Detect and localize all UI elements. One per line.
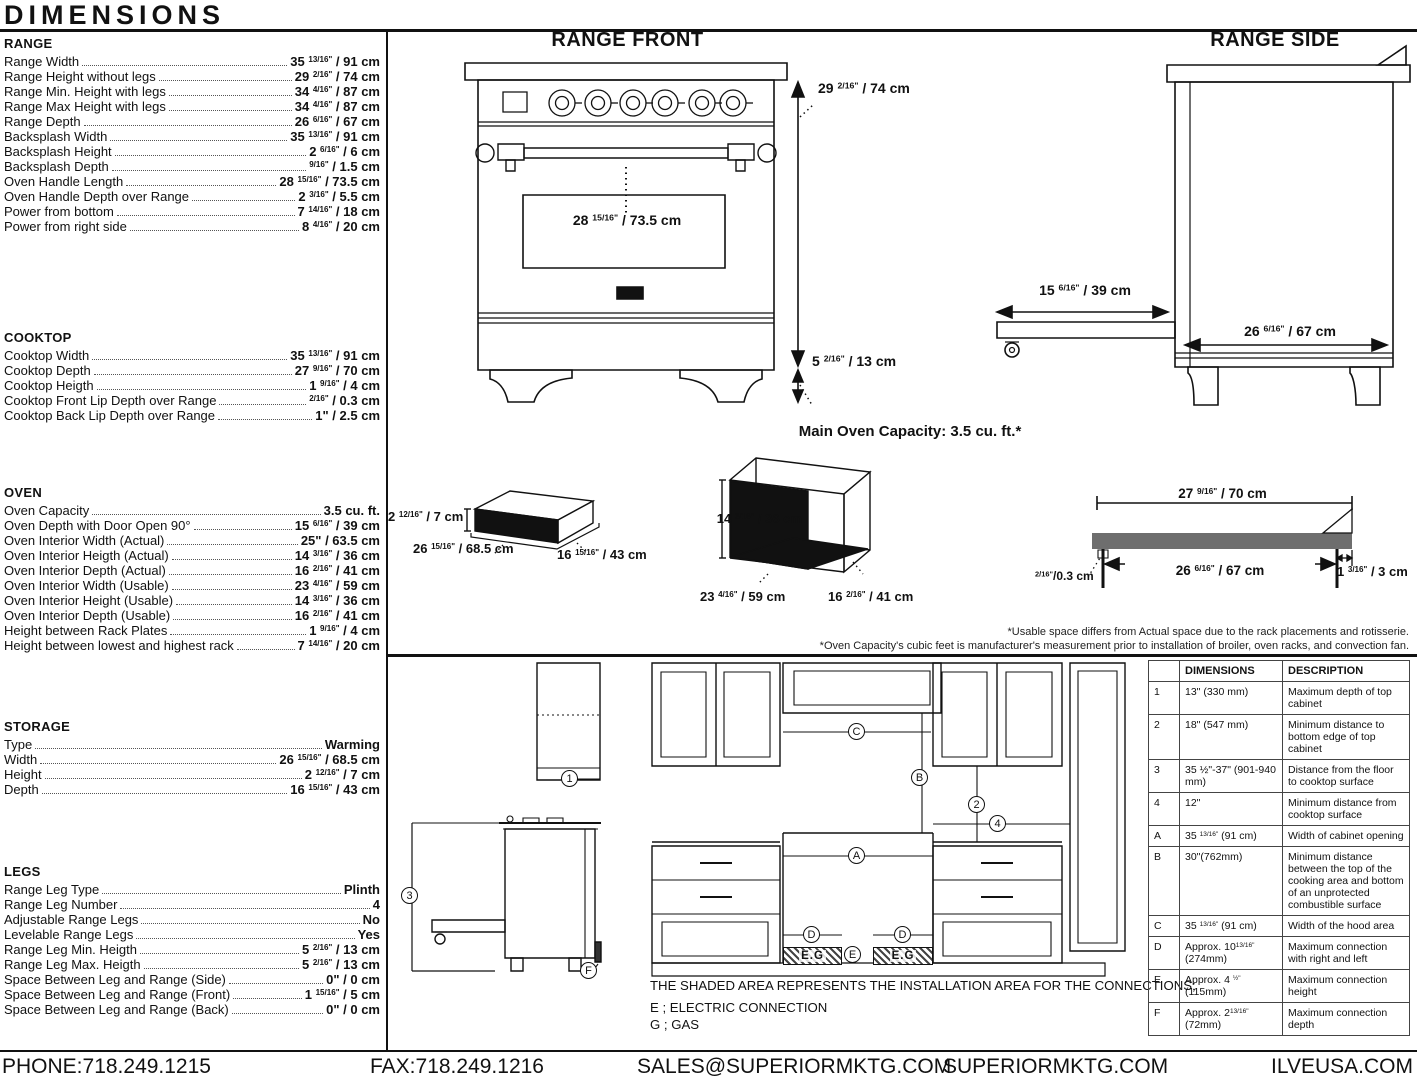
spec-label: Range Leg Max. Heigth <box>4 957 141 972</box>
storage-width-label: 26 15/16" / 68.5 cm <box>413 541 514 556</box>
spec-label: Cooktop Back Lip Depth over Range <box>4 408 215 423</box>
table-row: C35 13/16" (91 cm)Width of the hood area <box>1149 916 1410 937</box>
spec-row: Oven Depth with Door Open 90°15 6/16" / … <box>4 518 380 533</box>
spec-label: Backsplash Height <box>4 144 112 159</box>
footer-rule <box>0 1050 1417 1052</box>
dotted-leader <box>167 544 297 545</box>
dotted-leader <box>169 574 292 575</box>
spec-row: Range Height without legs29 2/16" / 74 c… <box>4 69 380 84</box>
spec-row: Height2 12/16" / 7 cm <box>4 767 380 782</box>
dotted-leader <box>173 619 292 620</box>
front-height-label: 29 2/16" / 74 cm <box>818 80 910 96</box>
front-handle-label: 28 15/16" / 73.5 cm <box>532 212 722 228</box>
callout-1: 1 <box>561 770 578 787</box>
dotted-leader <box>102 893 341 894</box>
drawer-dimension-arrow <box>997 306 1168 318</box>
section-heading: COOKTOP <box>4 330 380 345</box>
cooktop-inner-label: 26 6/16" / 67 cm <box>1125 563 1315 578</box>
spec-value: 4 <box>373 897 380 912</box>
spec-label: Range Leg Type <box>4 882 99 897</box>
callout-c: C <box>848 723 865 740</box>
upper-right-cabinets <box>933 663 1062 766</box>
open-drawer <box>432 920 505 932</box>
connection-zone-left: E.G <box>783 947 842 965</box>
leg-dimension-arrow <box>793 370 812 405</box>
oven-height-label: 14 3/16" / 36 cm <box>650 511 802 526</box>
row-id: A <box>1149 826 1180 847</box>
tall-cabinet <box>1070 663 1125 951</box>
footnote-usable: *Usable space differs from Actual space … <box>1007 626 1409 638</box>
spec-row: Range Max Height with legs34 4/16" / 87 … <box>4 99 380 114</box>
spec-row: Backsplash Height2 6/16" / 6 cm <box>4 144 380 159</box>
row-id: 4 <box>1149 793 1180 826</box>
spec-value: 7 14/16" / 18 cm <box>298 204 381 219</box>
row-id: C <box>1149 916 1180 937</box>
spec-value: 5 2/16" / 13 cm <box>302 942 380 957</box>
cooktop-lip-label: 2/16"/0.3 cm <box>1035 569 1094 583</box>
spec-row: Range Min. Height with legs34 4/16" / 87… <box>4 84 380 99</box>
callout-e: E <box>844 946 861 963</box>
row-id: B <box>1149 847 1180 916</box>
callout-2: 2 <box>968 796 985 813</box>
dotted-leader <box>169 95 292 96</box>
spec-row: Range Leg Number4 <box>4 897 380 912</box>
cooktop-top-label: 27 9/16" / 70 cm <box>1095 486 1350 501</box>
spec-row: Space Between Leg and Range (Front)1 15/… <box>4 987 380 1002</box>
dotted-leader <box>82 65 287 66</box>
spec-value: 16 2/16" / 41 cm <box>295 608 380 623</box>
backsplash-wedge <box>1378 46 1406 65</box>
dotted-leader <box>172 559 292 560</box>
spec-label: Depth <box>4 782 39 797</box>
spec-row: Cooktop Depth27 9/16" / 70 cm <box>4 363 380 378</box>
spec-row: Depth16 15/16" / 43 cm <box>4 782 380 797</box>
install-side-diagram <box>395 658 655 1048</box>
spec-value: 16 2/16" / 41 cm <box>295 563 380 578</box>
spec-label: Oven Capacity <box>4 503 89 518</box>
spec-label: Adjustable Range Legs <box>4 912 138 927</box>
row-id: 2 <box>1149 715 1180 760</box>
table-row: 335 ½"-37" (901-940 mm)Distance from the… <box>1149 760 1410 793</box>
row-description: Width of the hood area <box>1283 916 1410 937</box>
spec-row: TypeWarming <box>4 737 380 752</box>
capacity-title: Main Oven Capacity: 3.5 cu. ft.* <box>755 423 1065 440</box>
spec-value: 27 9/16" / 70 cm <box>295 363 380 378</box>
spec-value: 7 14/16" / 20 cm <box>298 638 381 653</box>
dotted-leader <box>136 938 354 939</box>
spec-row: Backsplash Depth9/16" / 1.5 cm <box>4 159 380 174</box>
footer-fax: FAX:718.249.1216 <box>370 1055 544 1079</box>
footer-site2: ILVEUSA.COM <box>1271 1055 1413 1079</box>
display-panel <box>503 92 527 112</box>
row-description: Minimum distance to bottom edge of top c… <box>1283 715 1410 760</box>
spec-label: Range Width <box>4 54 79 69</box>
spec-row: Oven Capacity3.5 cu. ft. <box>4 503 380 518</box>
row-dimension: 13" (330 mm) <box>1180 682 1283 715</box>
row-dimension: Approx. 4 ½" (115mm) <box>1180 970 1283 1003</box>
spec-label: Backsplash Depth <box>4 159 109 174</box>
side-depth-label: 26 6/16" / 67 cm <box>1185 323 1395 339</box>
dotted-leader <box>126 185 276 186</box>
row-dimension: 35 13/16" (91 cm) <box>1180 916 1283 937</box>
dotted-leader <box>169 110 292 111</box>
range-side-body <box>505 829 595 958</box>
spec-row: Oven Interior Width (Usable)23 4/16" / 5… <box>4 578 380 593</box>
spec-value: 35 13/16" / 91 cm <box>290 54 380 69</box>
row-id: F <box>1149 1003 1180 1036</box>
spec-label: Height between lowest and highest rack <box>4 638 234 653</box>
dotted-leader <box>94 374 292 375</box>
table-row: FApprox. 213/16" (72mm)Maximum connectio… <box>1149 1003 1410 1036</box>
table-row: 218" (547 mm)Minimum distance to bottom … <box>1149 715 1410 760</box>
spec-label: Power from right side <box>4 219 127 234</box>
spec-label: Oven Handle Depth over Range <box>4 189 189 204</box>
spec-row: Range Depth26 6/16" / 67 cm <box>4 114 380 129</box>
dotted-leader <box>233 998 302 999</box>
burner-knobs-icon <box>549 90 753 116</box>
row-id: 3 <box>1149 760 1180 793</box>
dotted-leader <box>97 389 307 390</box>
spec-value: 0" / 0 cm <box>326 1002 380 1017</box>
spec-label: Range Leg Min. Heigth <box>4 942 137 957</box>
description-column-header: DESCRIPTION <box>1283 661 1410 682</box>
spec-label: Oven Interior Width (Actual) <box>4 533 164 548</box>
spec-value: 0" / 0 cm <box>326 972 380 987</box>
range-side-diagram <box>990 40 1417 410</box>
spec-label: Oven Interior Depth (Usable) <box>4 608 170 623</box>
dotted-leader <box>117 215 295 216</box>
row-dimension: 35 ½"-37" (901-940 mm) <box>1180 760 1283 793</box>
spec-value: No <box>363 912 380 927</box>
spec-value: 28 15/16" / 73.5 cm <box>279 174 380 189</box>
spec-value: 2 3/16" / 5.5 cm <box>298 189 380 204</box>
upper-left-cabinets <box>652 663 780 766</box>
range-front-diagram <box>440 55 815 405</box>
wall-cabinet <box>537 663 600 780</box>
dotted-leader <box>170 634 306 635</box>
spec-row: Width26 15/16" / 68.5 cm <box>4 752 380 767</box>
spec-row: Space Between Leg and Range (Back)0" / 0… <box>4 1002 380 1017</box>
spec-label: Range Depth <box>4 114 81 129</box>
table-row: EApprox. 4 ½" (115mm)Maximum connection … <box>1149 970 1410 1003</box>
dimensions-column-header: DIMENSIONS <box>1180 661 1283 682</box>
spec-row: Adjustable Range LegsNo <box>4 912 380 927</box>
table-row: 113" (330 mm)Maximum depth of top cabine… <box>1149 682 1410 715</box>
table-row: DApprox. 1013/16" (274mm)Maximum connect… <box>1149 937 1410 970</box>
backsplash <box>465 63 787 80</box>
row-description: Maximum depth of top cabinet <box>1283 682 1410 715</box>
row-id: E <box>1149 970 1180 1003</box>
spec-value: 34 4/16" / 87 cm <box>295 99 380 114</box>
row-description: Minimum distance between the top of the … <box>1283 847 1410 916</box>
id-column-header <box>1149 661 1180 682</box>
side-drawer-label: 15 6/16" / 39 cm <box>995 282 1175 298</box>
oven-handle <box>476 144 776 171</box>
table-row: 412"Minimum distance from cooktop surfac… <box>1149 793 1410 826</box>
legend-gas: G ; GAS <box>650 1017 699 1032</box>
dotted-leader <box>218 419 312 420</box>
row-description: Maximum connection depth <box>1283 1003 1410 1036</box>
spec-row: Range Width35 13/16" / 91 cm <box>4 54 380 69</box>
depth-dimension-arrow <box>1185 339 1387 351</box>
storage-depth-label: 16 15/16" / 43 cm <box>557 547 647 562</box>
row-description: Width of cabinet opening <box>1283 826 1410 847</box>
page-title: DIMENSIONS <box>4 0 225 31</box>
dotted-leader <box>42 793 288 794</box>
spec-value: 2 6/16" / 6 cm <box>309 144 380 159</box>
spec-label: Range Min. Height with legs <box>4 84 166 99</box>
callout-d: D <box>803 926 820 943</box>
spec-section-storage: STORAGETypeWarmingWidth26 15/16" / 68.5 … <box>4 719 380 797</box>
spec-row: Backsplash Width35 13/16" / 91 cm <box>4 129 380 144</box>
spec-value: Plinth <box>344 882 380 897</box>
side-top-cap <box>1167 65 1410 82</box>
spec-value: 35 13/16" / 91 cm <box>290 129 380 144</box>
spec-row: Oven Handle Length28 15/16" / 73.5 cm <box>4 174 380 189</box>
spec-row: Cooktop Width35 13/16" / 91 cm <box>4 348 380 363</box>
burner-icon <box>507 816 513 822</box>
spec-row: Cooktop Front Lip Depth over Range2/16" … <box>4 393 380 408</box>
connection-zone-label: E.G <box>799 950 826 962</box>
right-base-cabinet <box>933 842 1062 963</box>
storage-height-label: 2 12/16" / 7 cm <box>388 509 463 524</box>
vertical-divider <box>386 31 388 1052</box>
callout-b: B <box>911 769 928 786</box>
spec-label: Space Between Leg and Range (Front) <box>4 987 230 1002</box>
front-leg-label: 5 2/16" / 13 cm <box>812 353 896 369</box>
table-row: B30"(762mm)Minimum distance between the … <box>1149 847 1410 916</box>
row-id: D <box>1149 937 1180 970</box>
spec-value: 34 4/16" / 87 cm <box>295 84 380 99</box>
spec-value: 3.5 cu. ft. <box>324 503 380 518</box>
spec-label: Backsplash Width <box>4 129 107 144</box>
installation-note: THE SHADED AREA REPRESENTS THE INSTALLAT… <box>650 978 1196 993</box>
spec-label: Space Between Leg and Range (Back) <box>4 1002 229 1017</box>
row-dimension: Approx. 1013/16" (274mm) <box>1180 937 1283 970</box>
spec-label: Range Leg Number <box>4 897 117 912</box>
spec-label: Oven Interior Heigth (Actual) <box>4 548 169 563</box>
spec-row: Cooktop Back Lip Depth over Range1" / 2.… <box>4 408 380 423</box>
table-header-row: DIMENSIONS DESCRIPTION <box>1149 661 1410 682</box>
spec-value: 1 15/16" / 5 cm <box>305 987 380 1002</box>
spec-section-range: RANGERange Width35 13/16" / 91 cmRange H… <box>4 36 380 234</box>
spec-row: Cooktop Heigth1 9/16" / 4 cm <box>4 378 380 393</box>
dotted-leader <box>84 125 292 126</box>
spec-row: Range Leg Min. Heigth5 2/16" / 13 cm <box>4 942 380 957</box>
dotted-leader <box>140 953 299 954</box>
connection-zone-right: E.G <box>873 947 933 965</box>
spec-row: Power from bottom7 14/16" / 18 cm <box>4 204 380 219</box>
dotted-leader <box>194 529 292 530</box>
spec-row: Oven Interior Heigth (Actual)14 3/16" / … <box>4 548 380 563</box>
dotted-leader <box>112 170 306 171</box>
spec-value: 1" / 2.5 cm <box>315 408 380 423</box>
spec-row: Levelable Range LegsYes <box>4 927 380 942</box>
row-dimension: 12" <box>1180 793 1283 826</box>
spec-section-legs: LEGSRange Leg TypePlinthRange Leg Number… <box>4 864 380 1017</box>
spec-section-cooktop: COOKTOPCooktop Width35 13/16" / 91 cmCoo… <box>4 330 380 423</box>
connection-block <box>595 942 601 962</box>
spec-value: 15 6/16" / 39 cm <box>295 518 380 533</box>
callout-4: 4 <box>989 815 1006 832</box>
range-front-title: RANGE FRONT <box>440 29 815 52</box>
spec-row: Oven Interior Depth (Actual)16 2/16" / 4… <box>4 563 380 578</box>
spec-value: 2/16" / 0.3 cm <box>309 393 380 408</box>
section-heading: OVEN <box>4 485 380 500</box>
dotted-leader <box>192 200 295 201</box>
dotted-leader <box>110 140 287 141</box>
section-heading: STORAGE <box>4 719 380 734</box>
row-dimension: Approx. 213/16" (72mm) <box>1180 1003 1283 1036</box>
legend-electric: E ; ELECTRIC CONNECTION <box>650 1000 827 1015</box>
spec-label: Oven Interior Depth (Actual) <box>4 563 166 578</box>
dotted-leader <box>172 589 292 590</box>
spec-label: Width <box>4 752 37 767</box>
spec-label: Type <box>4 737 32 752</box>
spec-label: Levelable Range Legs <box>4 927 133 942</box>
footnote-capacity: *Oven Capacity's cubic feet is manufactu… <box>820 640 1409 652</box>
spec-value: 26 6/16" / 67 cm <box>295 114 380 129</box>
spec-row: Oven Interior Width (Actual)25" / 63.5 c… <box>4 533 380 548</box>
dotted-leader <box>115 155 307 156</box>
spec-label: Oven Handle Length <box>4 174 123 189</box>
spec-row: Oven Interior Depth (Usable)16 2/16" / 4… <box>4 608 380 623</box>
spec-value: 5 2/16" / 13 cm <box>302 957 380 972</box>
callout-a: A <box>848 847 865 864</box>
footer-site: SUPERIORMKTG.COM <box>943 1055 1168 1079</box>
install-front-diagram <box>650 658 1130 988</box>
dotted-leader <box>35 748 322 749</box>
spec-row: Power from right side8 4/16" / 20 cm <box>4 219 380 234</box>
height-dimension-arrow <box>792 82 813 366</box>
spec-value: 2 12/16" / 7 cm <box>305 767 380 782</box>
spec-value: 14 3/16" / 36 cm <box>295 593 380 608</box>
caster-icon <box>1005 343 1019 357</box>
spec-section-oven: OVENOven Capacity3.5 cu. ft.Oven Depth w… <box>4 485 380 653</box>
dotted-leader <box>159 80 292 81</box>
spec-row: Oven Handle Depth over Range2 3/16" / 5.… <box>4 189 380 204</box>
spec-value: 25" / 63.5 cm <box>301 533 380 548</box>
footer-email: SALES@SUPERIORMKTG.COM <box>637 1055 951 1079</box>
spec-sheet-page: DIMENSIONS RANGERange Width35 13/16" / 9… <box>0 0 1417 1080</box>
middle-divider <box>386 654 1417 657</box>
dotted-leader <box>232 1013 323 1014</box>
spec-value: 8 4/16" / 20 cm <box>302 219 380 234</box>
dotted-leader <box>176 604 292 605</box>
spec-label: Cooktop Width <box>4 348 89 363</box>
spec-label: Cooktop Heigth <box>4 378 94 393</box>
callout-f: F <box>580 962 597 979</box>
spec-label: Oven Interior Width (Usable) <box>4 578 169 593</box>
spec-row: Height between lowest and highest rack7 … <box>4 638 380 653</box>
spec-row: Height between Rack Plates1 9/16" / 4 cm <box>4 623 380 638</box>
spec-label: Space Between Leg and Range (Side) <box>4 972 226 987</box>
spec-label: Height between Rack Plates <box>4 623 167 638</box>
dotted-leader <box>229 983 323 984</box>
dotted-leader <box>141 923 359 924</box>
dotted-leader <box>40 763 276 764</box>
row-description: Maximum connection with right and left <box>1283 937 1410 970</box>
brand-logo <box>617 287 643 299</box>
spec-label: Power from bottom <box>4 204 114 219</box>
dotted-leader <box>144 968 299 969</box>
dotted-leader <box>130 230 299 231</box>
section-heading: RANGE <box>4 36 380 51</box>
open-drawer <box>997 322 1175 357</box>
hood-cabinet <box>783 663 941 713</box>
spec-label: Height <box>4 767 42 782</box>
oven-window <box>523 195 725 268</box>
row-description: Minimum distance from cooktop surface <box>1283 793 1410 826</box>
oven-width-label: 23 4/16" / 59 cm <box>700 589 785 604</box>
dotted-leader <box>45 778 302 779</box>
spec-value: 16 15/16" / 43 cm <box>290 782 380 797</box>
cooktop-slab <box>1092 533 1352 549</box>
spec-value: 14 3/16" / 36 cm <box>295 548 380 563</box>
cooktop-right-label: 1 3/16" / 3 cm <box>1337 564 1408 579</box>
footer-phone: PHONE:718.249.1215 <box>2 1055 211 1079</box>
range-legs <box>490 370 762 402</box>
dimensions-table: DIMENSIONS DESCRIPTION 113" (330 mm)Maxi… <box>1148 660 1410 1036</box>
callout-d: D <box>894 926 911 943</box>
left-base-cabinet <box>652 842 780 963</box>
row-id: 1 <box>1149 682 1180 715</box>
spec-value: Yes <box>358 927 380 942</box>
dotted-leader <box>219 404 306 405</box>
spec-value: 26 15/16" / 68.5 cm <box>279 752 380 767</box>
caster-icon <box>435 934 445 944</box>
spec-label: Cooktop Front Lip Depth over Range <box>4 393 216 408</box>
row-description: Distance from the floor to cooktop surfa… <box>1283 760 1410 793</box>
spec-row: Space Between Leg and Range (Side)0" / 0… <box>4 972 380 987</box>
spec-value: 23 4/16" / 59 cm <box>295 578 380 593</box>
dotted-leader <box>92 359 287 360</box>
spec-row: Oven Interior Height (Usable)14 3/16" / … <box>4 593 380 608</box>
spec-value: 9/16" / 1.5 cm <box>309 159 380 174</box>
spec-label: Oven Depth with Door Open 90° <box>4 518 191 533</box>
connection-zone-label: E.G <box>890 950 917 962</box>
spec-label: Cooktop Depth <box>4 363 91 378</box>
dotted-leader <box>92 514 320 515</box>
spec-label: Range Height without legs <box>4 69 156 84</box>
spec-row: Range Leg Max. Heigth5 2/16" / 13 cm <box>4 957 380 972</box>
row-dimension: 18" (547 mm) <box>1180 715 1283 760</box>
spec-value: Warming <box>325 737 380 752</box>
oven-depth-label: 16 2/16" / 41 cm <box>828 589 913 604</box>
spec-value: 35 13/16" / 91 cm <box>290 348 380 363</box>
dotted-leader <box>237 649 295 650</box>
row-dimension: 35 13/16" (91 cm) <box>1180 826 1283 847</box>
row-description: Maximum connection height <box>1283 970 1410 1003</box>
spec-value: 29 2/16" / 74 cm <box>295 69 380 84</box>
side-legs <box>1188 367 1380 405</box>
spec-value: 1 9/16" / 4 cm <box>309 378 380 393</box>
spec-label: Range Max Height with legs <box>4 99 166 114</box>
row-dimension: 30"(762mm) <box>1180 847 1283 916</box>
section-heading: LEGS <box>4 864 380 879</box>
spec-label: Oven Interior Height (Usable) <box>4 593 173 608</box>
spec-value: 1 9/16" / 4 cm <box>309 623 380 638</box>
callout-3: 3 <box>401 887 418 904</box>
dotted-leader <box>120 908 369 909</box>
table-row: A35 13/16" (91 cm)Width of cabinet openi… <box>1149 826 1410 847</box>
spec-row: Range Leg TypePlinth <box>4 882 380 897</box>
